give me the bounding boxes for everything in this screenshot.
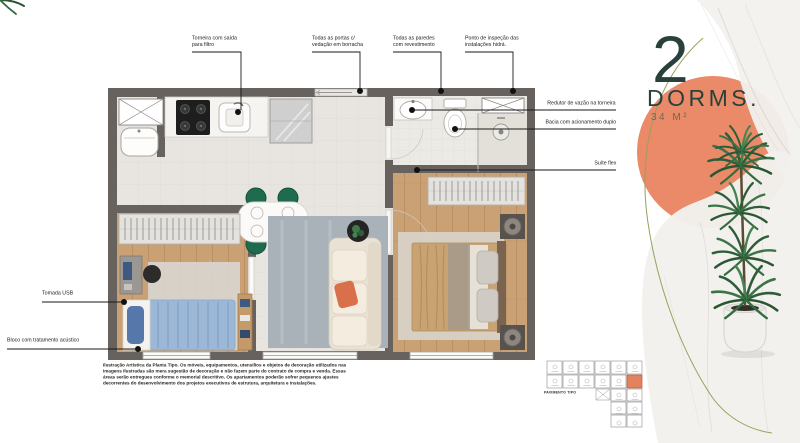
desk-chair: [143, 265, 161, 283]
desk: [120, 256, 142, 294]
shelf-unit: [238, 294, 252, 350]
shower-floor: [478, 113, 527, 172]
annotation-ponto-inspecao: Ponto de inspeção das instalações hidrá.: [465, 35, 519, 48]
disclaimer-text: Ilustração Artística da Planta Tipo. Os …: [103, 362, 352, 387]
badge-area: 34 M²: [651, 112, 689, 123]
keyplate-caption: PAVIMENTO TIPO: [544, 391, 576, 395]
bedroom-1: [119, 214, 252, 350]
annotation-portas-vedacao: Todas as portas c/ vedação em borracha: [312, 35, 363, 48]
living-room: [268, 216, 388, 350]
coffee-table: [347, 220, 369, 242]
badge-label: DORMS.: [647, 85, 760, 112]
floor-plan: [7, 52, 616, 360]
double-bed: [412, 241, 506, 333]
annotation-bacia-duplo: Bacia com acionamento duplo: [545, 119, 616, 125]
annotation-redutor-vazao: Redutor de vazão na torneira: [548, 100, 616, 106]
annotation-torneira-filtro: Torneira com saída para filtro: [192, 35, 237, 48]
keyplate-core: [596, 389, 610, 400]
kitchen-sink: [219, 103, 250, 132]
wardrobe-suite: [428, 177, 525, 205]
kitchen: [165, 97, 312, 143]
stove: [176, 100, 210, 135]
windows: [143, 352, 493, 359]
annotation-tomada-usb: Tomada USB: [42, 290, 73, 296]
badge-number: 2: [652, 26, 689, 92]
annotation-paredes-revestimento: Todas as paredes com revestimento: [393, 35, 435, 48]
annotation-suite-flex: Suíte flex: [594, 160, 616, 166]
inspection-box: [482, 98, 524, 113]
sofa: [329, 238, 381, 350]
fridge: [270, 99, 312, 143]
floorplan-marketing-page: 2 DORMS. 34 M² Torneira com saída para f…: [0, 0, 800, 443]
keyplate-highlighted-unit: [627, 375, 642, 388]
single-bed: [123, 300, 235, 350]
annotation-bloco-acustico: Bloco com tratamento acústico: [7, 337, 79, 343]
wardrobe-1: [119, 214, 240, 244]
